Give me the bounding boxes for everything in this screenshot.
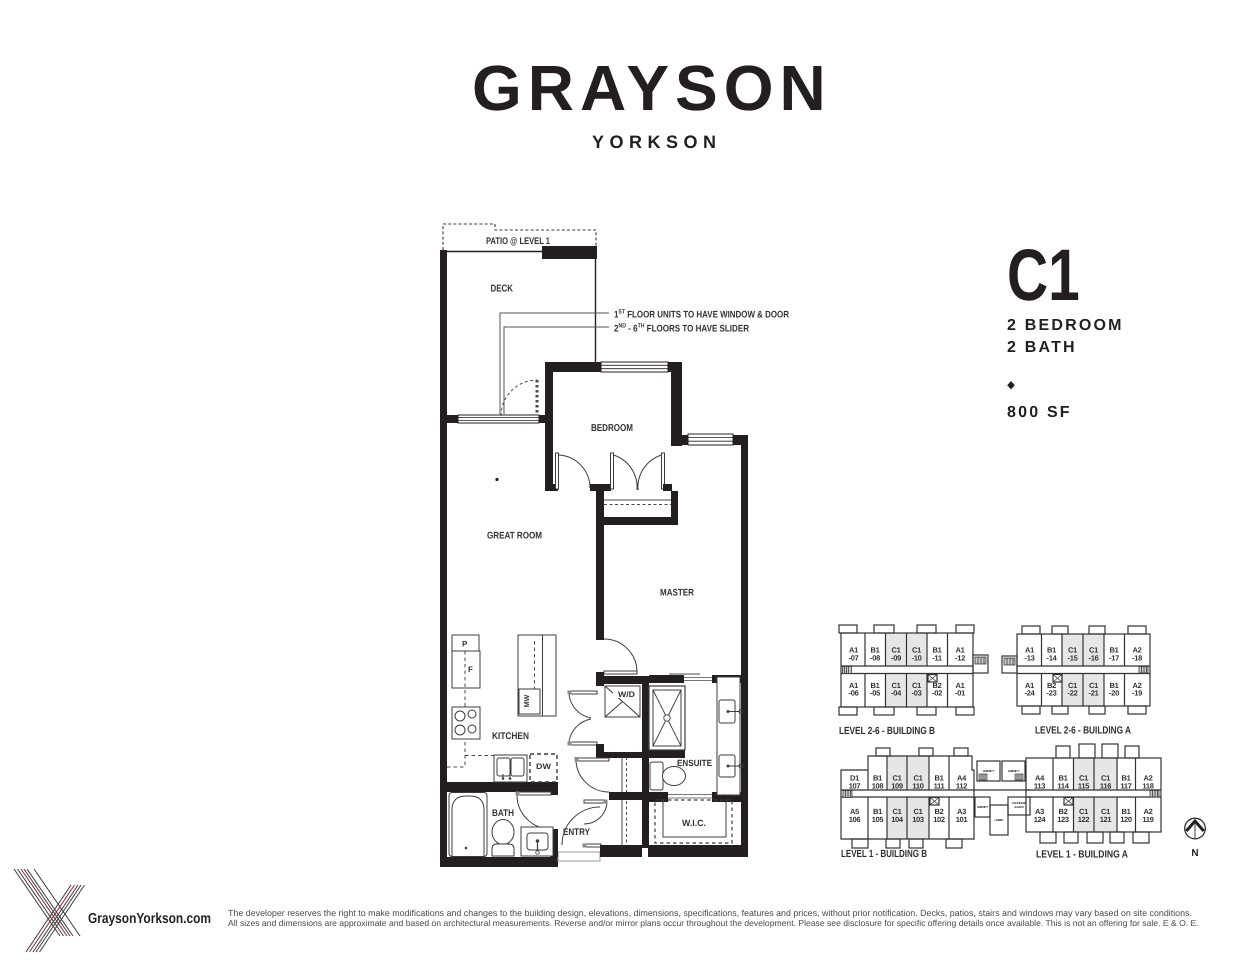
svg-text:P: P — [462, 640, 468, 649]
svg-text:BATH: BATH — [492, 808, 514, 819]
svg-text:LEVEL 2-6 - BUILDING B: LEVEL 2-6 - BUILDING B — [839, 726, 935, 737]
svg-text:114: 114 — [1057, 782, 1069, 791]
svg-text:123: 123 — [1057, 815, 1069, 824]
svg-text:116: 116 — [1100, 782, 1111, 791]
svg-text:110: 110 — [912, 782, 923, 791]
svg-text:105: 105 — [872, 815, 884, 824]
svg-text:AMENITY: AMENITY — [983, 769, 995, 773]
svg-text:1ST FLOOR UNITS TO HAVE WINDOW: 1ST FLOOR UNITS TO HAVE WINDOW & DOOR — [614, 308, 789, 320]
svg-text:PATIO @ LEVEL 1: PATIO @ LEVEL 1 — [486, 236, 551, 247]
svg-text:-16: -16 — [1089, 654, 1099, 663]
svg-text:F: F — [468, 665, 473, 674]
svg-text:106: 106 — [849, 815, 861, 824]
svg-text:-09: -09 — [891, 654, 901, 663]
svg-text:W/D: W/D — [618, 690, 635, 699]
svg-text:121: 121 — [1100, 815, 1112, 824]
svg-text:102: 102 — [933, 815, 945, 824]
svg-text:KITCHEN: KITCHEN — [492, 731, 529, 742]
svg-text:-23: -23 — [1047, 689, 1057, 698]
svg-text:117: 117 — [1120, 782, 1131, 791]
svg-text:LOBBY: LOBBY — [994, 818, 1003, 822]
svg-text:AMENITY: AMENITY — [977, 805, 989, 809]
svg-text:-04: -04 — [891, 689, 902, 698]
svg-text:122: 122 — [1078, 815, 1090, 824]
svg-text:-17: -17 — [1109, 654, 1119, 663]
svg-text:-22: -22 — [1068, 689, 1078, 698]
svg-text:104: 104 — [891, 815, 904, 824]
svg-text:-12: -12 — [955, 654, 965, 663]
svg-text:-13: -13 — [1025, 654, 1035, 663]
svg-text:119: 119 — [1142, 815, 1153, 824]
svg-text:BEDROOM: BEDROOM — [591, 423, 633, 434]
svg-text:108: 108 — [872, 782, 884, 791]
svg-text:111: 111 — [934, 782, 945, 791]
svg-text:113: 113 — [1034, 782, 1045, 791]
svg-text:MW: MW — [524, 694, 531, 707]
svg-text:ENSUITE: ENSUITE — [677, 758, 712, 768]
svg-text:-02: -02 — [932, 689, 942, 698]
svg-text:2ND - 6TH FLOORS TO HAVE SLIDE: 2ND - 6TH FLOORS TO HAVE SLIDER — [614, 322, 749, 334]
svg-text:LEVEL 1 - BUILDING B: LEVEL 1 - BUILDING B — [841, 849, 927, 860]
svg-text:-21: -21 — [1089, 689, 1099, 698]
svg-text:-05: -05 — [870, 689, 880, 698]
svg-text:118: 118 — [1142, 782, 1153, 791]
svg-text:-18: -18 — [1132, 654, 1142, 663]
svg-text:LEVEL 2-6 - BUILDING A: LEVEL 2-6 - BUILDING A — [1035, 726, 1131, 737]
svg-text:ENTRY: ENTRY — [563, 827, 590, 838]
svg-text:109: 109 — [891, 782, 903, 791]
svg-text:101: 101 — [956, 815, 968, 824]
svg-text:120: 120 — [1120, 815, 1132, 824]
svg-text:-20: -20 — [1109, 689, 1119, 698]
svg-text:-01: -01 — [955, 689, 965, 698]
svg-text:GREAT ROOM: GREAT ROOM — [487, 531, 542, 542]
svg-text:-11: -11 — [932, 654, 942, 663]
svg-text:AMENITY: AMENITY — [1008, 769, 1020, 773]
svg-text:-07: -07 — [849, 654, 859, 663]
svg-text:-15: -15 — [1068, 654, 1078, 663]
svg-text:W.I.C.: W.I.C. — [682, 818, 706, 828]
svg-text:DW: DW — [536, 762, 552, 771]
svg-text:-14: -14 — [1047, 654, 1058, 663]
svg-text:DECK: DECK — [491, 284, 514, 295]
svg-text:112: 112 — [956, 782, 967, 791]
svg-text:N: N — [1191, 848, 1198, 859]
svg-text:124: 124 — [1034, 815, 1047, 824]
svg-text:-24: -24 — [1025, 689, 1036, 698]
svg-text:-06: -06 — [849, 689, 859, 698]
svg-text:-08: -08 — [870, 654, 880, 663]
svg-text:& MAINT: & MAINT — [1014, 805, 1024, 809]
svg-text:103: 103 — [912, 815, 924, 824]
svg-text:LEVEL 1 - BUILDING A: LEVEL 1 - BUILDING A — [1036, 850, 1128, 861]
svg-text:MASTER: MASTER — [660, 588, 694, 599]
svg-text:-10: -10 — [912, 654, 922, 663]
svg-text:-03: -03 — [912, 689, 922, 698]
svg-text:107: 107 — [849, 782, 861, 791]
svg-text:-19: -19 — [1132, 689, 1142, 698]
svg-text:115: 115 — [1078, 782, 1089, 791]
